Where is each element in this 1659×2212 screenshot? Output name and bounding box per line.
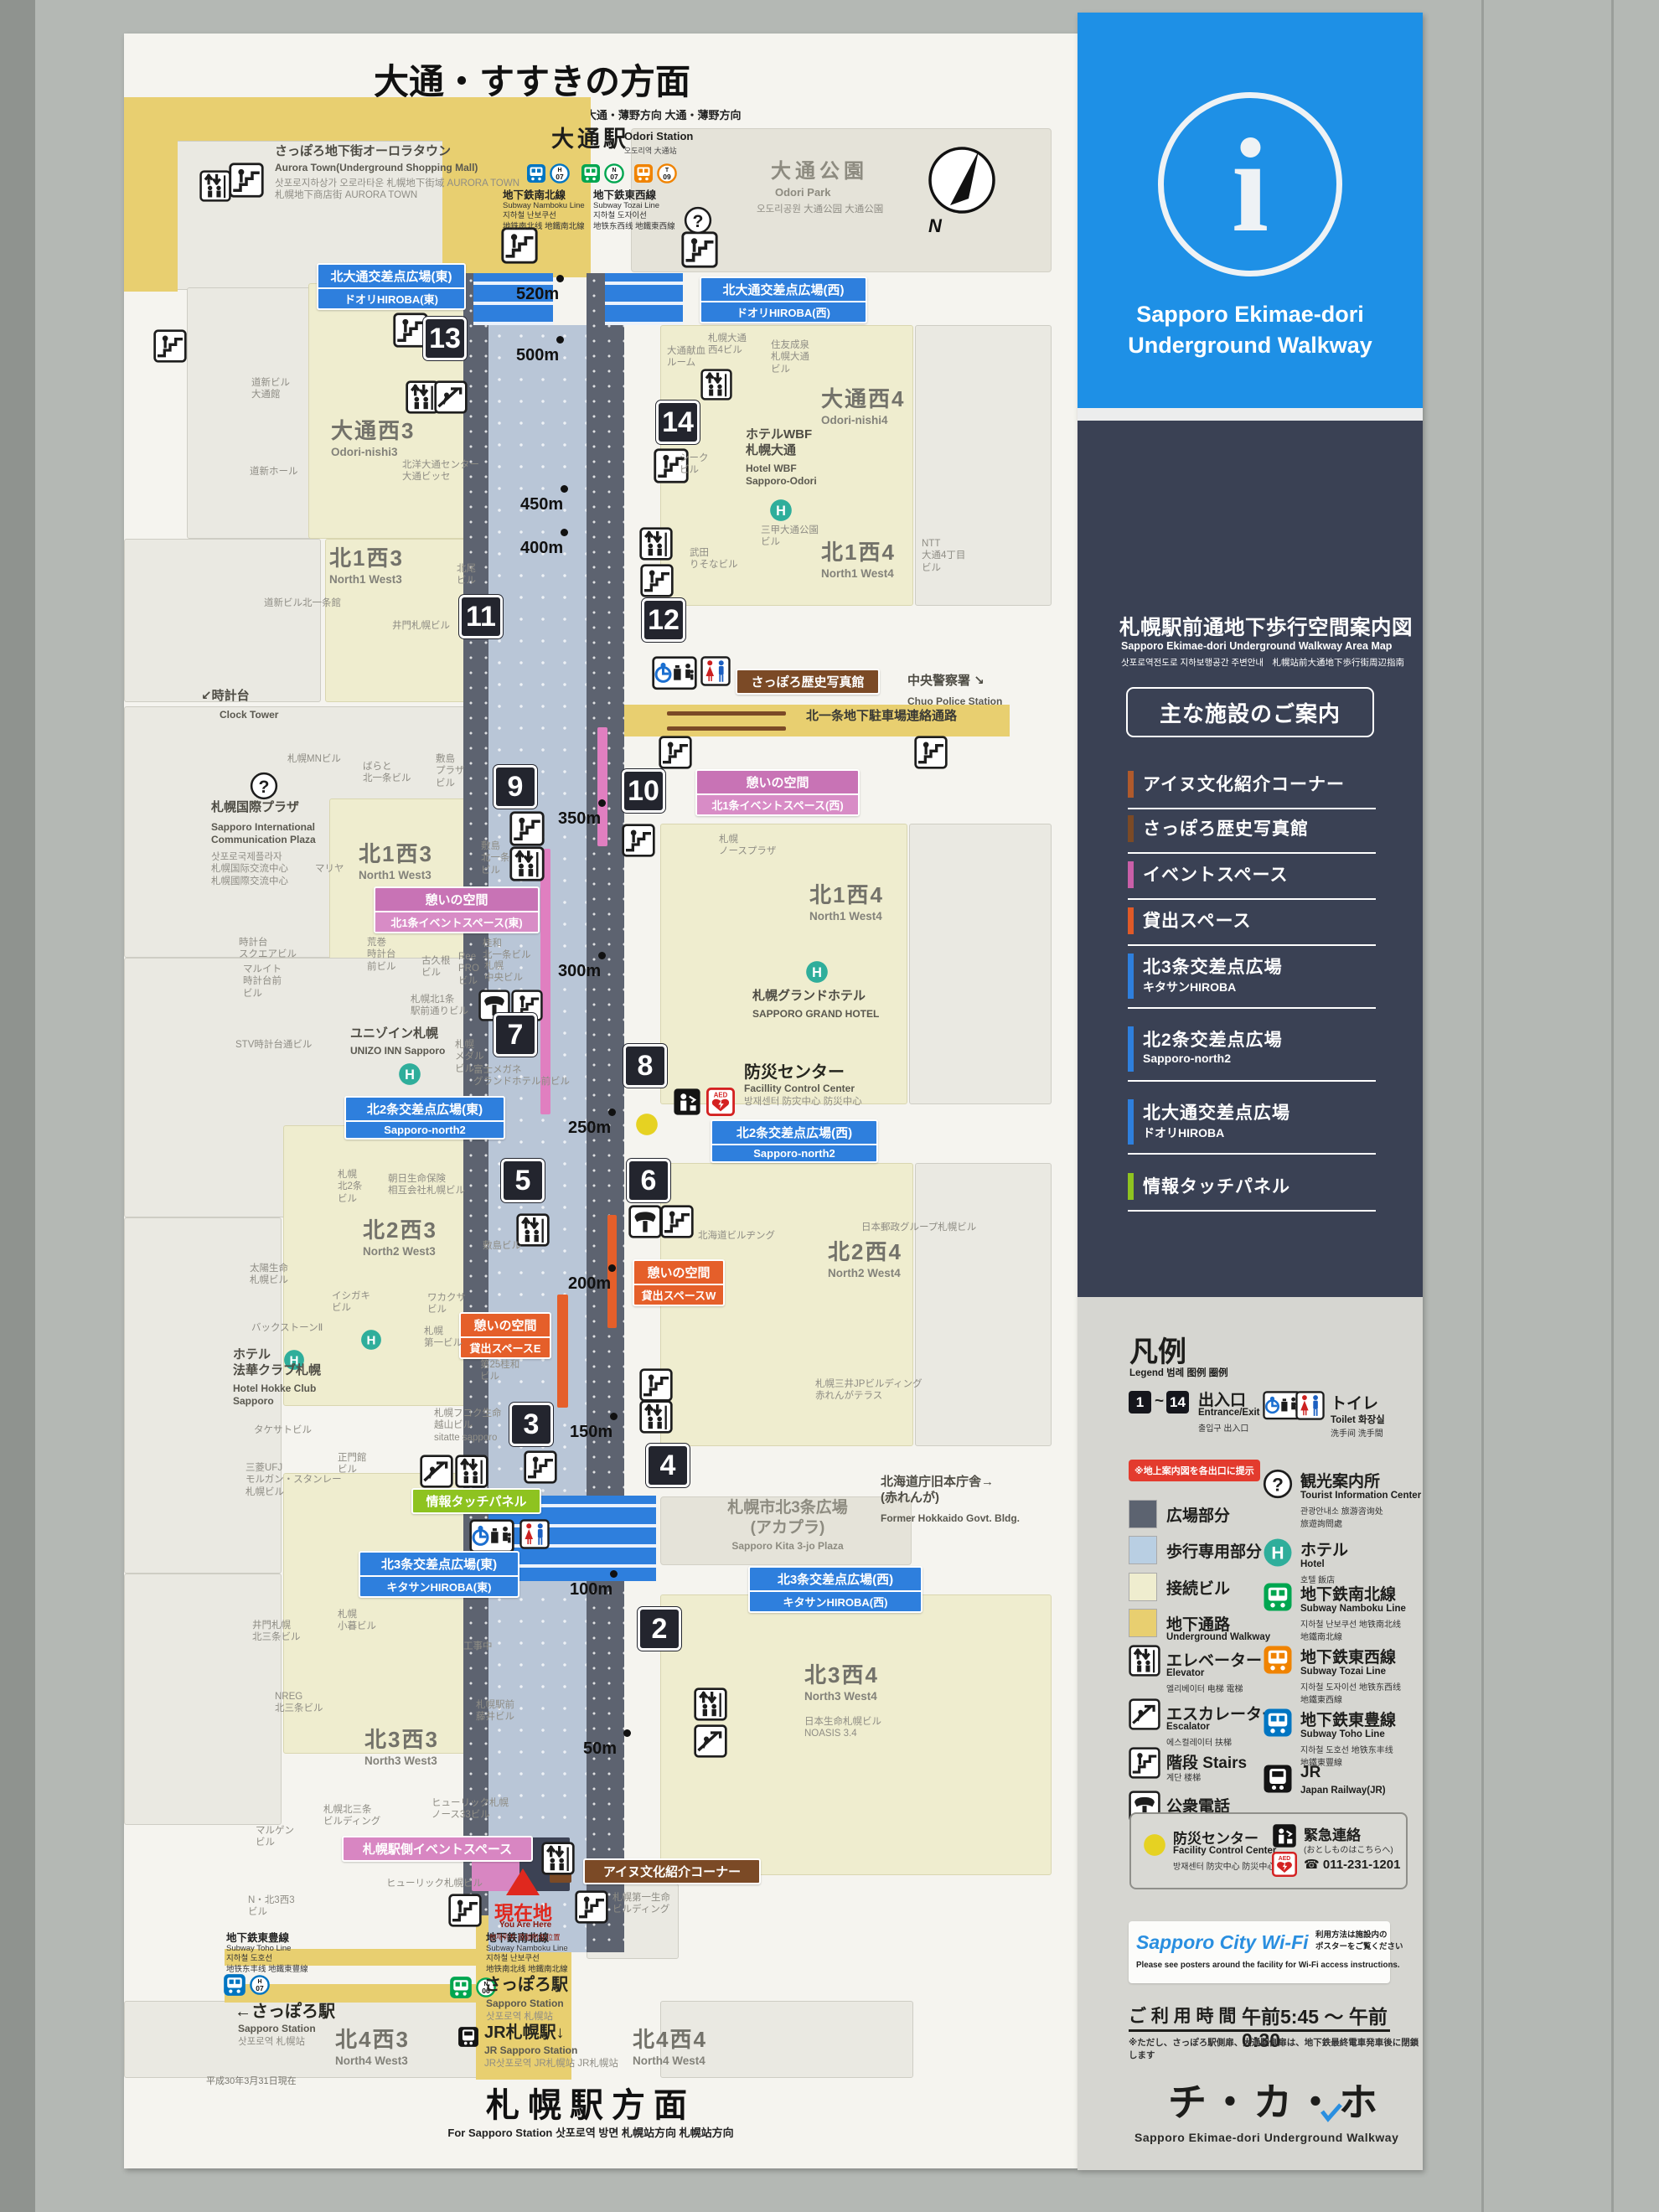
map-text: 北4西4 <box>633 2026 707 2054</box>
map-text: Sapporo International Communication Plaz… <box>211 821 316 846</box>
q-icon: ? <box>1263 1469 1293 1499</box>
map-text: 北1西3 <box>359 840 433 868</box>
map-text: 北2西3 <box>363 1217 437 1244</box>
map-text: 札幌大通 西4ビル <box>708 333 747 357</box>
svg-text:AED: AED <box>714 1091 728 1098</box>
map-title-bottom-sub: For Sapporo Station 삿포로역 방면 札幌站方向 札幌站方向 <box>318 2127 863 2140</box>
distance-marker: 200m <box>568 1274 611 1294</box>
map-text: 大通西3 <box>331 417 415 445</box>
hotel-icon: H <box>769 499 793 522</box>
facility-name: さっぽろ歴史写真館 <box>1143 815 1309 840</box>
map-place-tag: さっぽろ歴史写真館 <box>736 669 880 695</box>
map-text: バックストーンⅡ <box>251 1322 323 1334</box>
map-text: 朝日生命保険 相互会社札幌ビル <box>388 1173 465 1197</box>
underground-walkway-band <box>124 97 178 292</box>
legend-text: 地下通路 <box>1166 1612 1230 1635</box>
q-icon: ? <box>684 206 712 235</box>
legend-text: (おとしものはこちらへ) <box>1304 1842 1393 1855</box>
subN-icon <box>449 1976 473 1999</box>
distance-marker: 350m <box>558 809 601 829</box>
map-text: 工事中 <box>463 1641 493 1652</box>
map-text: 札幌北三条 ビルディング <box>323 1804 380 1828</box>
compass-north-label: N <box>928 215 942 237</box>
map-text: 日本生命札幌ビル NOASIS 3.4 <box>804 1716 881 1740</box>
map-text: さっぽろ地下街オーロラタウン <box>275 144 451 160</box>
info-panel-line1: Sapporo Ekimae-dori <box>1078 302 1423 328</box>
event-space-strip <box>667 711 786 716</box>
elev-icon <box>700 369 732 401</box>
subway-line-badge: T09 <box>657 163 677 183</box>
map-text: Chuo Police Station <box>907 695 1002 708</box>
q-icon: ? <box>250 772 278 800</box>
map-text: 防災センター <box>744 1062 845 1083</box>
subN-icon <box>581 163 601 183</box>
map-text: 道新ビル北一条館 <box>264 597 341 609</box>
map-text: 北海道庁旧本庁舎→ (赤れんが) <box>881 1475 994 1507</box>
map-text: North3 West4 <box>804 1690 877 1704</box>
wall-seam <box>1481 0 1484 2212</box>
stairs-icon <box>639 1368 673 1402</box>
map-text: ホテル 法華クラブ札幌 <box>233 1347 321 1379</box>
map-text: SAPPORO GRAND HOTEL <box>752 1008 879 1021</box>
you-are-here-kc: 현재위치 目前所在位置 <box>489 1932 561 1942</box>
legend-text: 관광안내소 旅游咨询处 旅遊詢問處 <box>1300 1504 1383 1529</box>
esc-icon <box>1129 1698 1160 1730</box>
building-block <box>187 287 313 539</box>
area-map-text: 삿포로역전도로 지하보행공간 주변안내 札幌站前大通地下歩行街周辺指南 <box>1121 656 1404 669</box>
distance-marker: 400m <box>520 539 563 558</box>
map-text: North4 West3 <box>335 2054 408 2069</box>
svg-text:H: H <box>405 1067 415 1083</box>
legend-text: 地下鉄東豊線 <box>1300 1708 1396 1730</box>
facility-name: 貸出スペース <box>1143 907 1251 933</box>
map-text: 札幌 ノースプラザ <box>719 834 776 858</box>
subH-icon <box>223 1973 246 1997</box>
building-block <box>124 1574 282 1825</box>
map-text: 大通駅 <box>551 126 629 154</box>
exit-number-badge: 7 <box>494 1013 537 1057</box>
subway-line-badge: H07 <box>250 1975 270 1995</box>
legend-text: 出入口 <box>1198 1388 1246 1410</box>
map-text: NTT 大通4丁目 ビル <box>922 538 965 574</box>
exit-number-badge: 6 <box>627 1159 670 1202</box>
stairs-icon <box>501 227 538 264</box>
legend-title-sub: Legend 범례 图例 圈例 <box>1129 1366 1228 1379</box>
map-text: 北4西3 <box>335 2026 410 2054</box>
map-text: 北3西4 <box>804 1662 879 1689</box>
event-space-strip <box>667 726 786 731</box>
map-text: 오도리공원 大通公园 大通公園 <box>757 204 883 215</box>
map-text: 北2西4 <box>828 1238 902 1266</box>
map-text: 井門札幌 北三条ビル <box>252 1620 301 1644</box>
map-text: 오도리역 大通站 <box>624 147 677 156</box>
legend-swatch <box>1129 1609 1157 1637</box>
dot-icon <box>635 1113 659 1136</box>
legend-panel: 凡例Legend 범례 图例 圈例1~14出入口Entrance/Exit출입구… <box>1078 1297 1423 2170</box>
map-text: 三菱UFJ モルガン・スタンレー 札幌ビル <box>245 1462 342 1498</box>
facility-separator <box>1128 1153 1376 1155</box>
map-text: North1 West3 <box>359 869 432 883</box>
map-text: ユニゾイン札幌 <box>350 1026 438 1042</box>
map-text: 札幌 小暮ビル <box>338 1609 376 1633</box>
facility-subname: Sapporo-north2 <box>1143 1052 1231 1065</box>
crossing-plaza-zone <box>605 273 683 325</box>
subH-icon <box>1263 1708 1293 1738</box>
chikaho-logo-en: Sapporo Ekimae-dori Underground Walkway <box>1134 2131 1398 2144</box>
map-text: 道新ビル 大通館 <box>251 377 290 401</box>
stairs-icon <box>575 1890 608 1924</box>
range-tilde: ~ <box>1155 1393 1164 1411</box>
exit-number-badge: 2 <box>638 1607 681 1651</box>
wall-seam <box>1611 0 1614 2212</box>
hotel-icon: H <box>398 1062 421 1086</box>
legend-text: Japan Railway(JR) <box>1300 1786 1386 1796</box>
map-text: Aurora Town(Underground Shopping Mall) <box>275 162 478 174</box>
map-text: 방재센터 防灾中心 防災中心 <box>744 1096 862 1108</box>
elev-icon <box>694 1687 727 1721</box>
svg-text:H: H <box>776 504 786 519</box>
distance-marker: 300m <box>558 962 601 981</box>
exit-number-badge: 14 <box>656 401 700 444</box>
legend-text: Escalator <box>1166 1722 1210 1732</box>
map-text: 北洋大通センター 大通ビッセ <box>402 459 479 483</box>
info-icon-letter: i <box>1164 105 1336 266</box>
map-text: 平成30年3月31日現在 <box>206 2076 297 2088</box>
map-text: Subway Tozai Line 지하철 도자이선 地铁东西线 地鐵東西線 <box>593 201 675 232</box>
legend-text: 洗手间 洗手間 <box>1331 1426 1383 1439</box>
facility-name: 北3条交差点広場 <box>1143 954 1283 979</box>
esc-icon <box>434 380 468 414</box>
distance-marker: 50m <box>583 1739 617 1759</box>
aed-icon: AED <box>706 1088 735 1116</box>
map-text: JR삿포로역 JR札幌站 JR札幌站 <box>484 2058 618 2070</box>
map-text: タケサトビル <box>254 1424 312 1436</box>
map-text: North1 West4 <box>809 910 882 924</box>
map-text: Odori-nishi4 <box>821 414 888 428</box>
svg-text:07: 07 <box>556 173 564 181</box>
elev-icon <box>455 1455 488 1488</box>
info-icon: i <box>1158 92 1342 276</box>
facility-separator <box>1128 1080 1376 1082</box>
map-text: ↙時計台 <box>201 689 250 705</box>
facility-subname: キタサンHIROBA <box>1143 979 1236 995</box>
facility-color-bar <box>1128 907 1134 934</box>
map-text: 札幌MNビル <box>287 753 341 765</box>
map-text: Subway Namboku Line 지하철 난보쿠선 地铁南北线 地鐵南北線 <box>503 201 585 232</box>
toiletMF-icon <box>1295 1391 1325 1420</box>
wifi-en: Please see posters around the facility f… <box>1136 1961 1400 1970</box>
map-text: 北3西3 <box>364 1726 439 1754</box>
legend-text: 지하철 난보쿠선 地铁南北线 地鐵南北線 <box>1300 1617 1401 1642</box>
stairs-icon <box>660 1205 694 1238</box>
facility-color-bar <box>1128 1173 1134 1200</box>
map-text: NREG 北三条ビル <box>275 1691 323 1715</box>
map-text: シーク ビル <box>680 452 709 477</box>
map-text: 札幌駅前 藤井ビル <box>476 1699 514 1724</box>
map-text: 삿포로국제플라자 札幌国际交流中心 札幌國際交流中心 <box>211 851 288 887</box>
facility-color-bar <box>1128 771 1134 798</box>
map-text: Former Hokkaido Govt. Bldg. <box>881 1512 1020 1525</box>
stairs-icon <box>153 329 187 363</box>
map-text: Odori Station <box>624 130 693 143</box>
map-text: 大通献血 ルーム <box>667 345 705 370</box>
stairs-icon <box>1129 1747 1160 1779</box>
svg-text:H: H <box>812 965 822 980</box>
facility-separator <box>1128 1210 1376 1212</box>
map-text: N・北3西3 ビル <box>248 1894 295 1919</box>
map-text: UNIZO INN Sapporo <box>350 1045 445 1057</box>
map-text: Sapporo Kita 3-jo Plaza <box>708 1540 867 1553</box>
map-text: 太陽生命 札幌ビル <box>250 1263 288 1287</box>
map-text: North2 West4 <box>828 1267 901 1281</box>
area-map-text: Sapporo Ekimae-dori Underground Walkway … <box>1121 640 1392 652</box>
legend-swatch <box>1129 1536 1157 1564</box>
hotel-icon: H <box>360 1329 382 1351</box>
legend-text: Facility Control Center <box>1173 1846 1276 1856</box>
map-text: 札幌 第一ビル <box>424 1326 463 1350</box>
esc-icon <box>694 1724 727 1758</box>
toiletMF-icon <box>519 1519 550 1549</box>
map-text: 札幌フコク生命 越山ビル sitatte sapporo <box>434 1408 502 1444</box>
map-text: North2 West3 <box>363 1245 436 1259</box>
map-text: イシガキ ビル <box>332 1290 370 1315</box>
exit-number-badge: 8 <box>623 1044 667 1088</box>
map-text: 荒巻 時計台 前ビル <box>367 937 396 973</box>
map-text: 中央警察署 ↘ <box>907 674 985 690</box>
em-tel: ☎ 011-231-1201 <box>1304 1857 1400 1872</box>
map-place-tag: 憩いの空間貸出スペースW <box>633 1259 725 1306</box>
building-block <box>124 539 321 702</box>
legend-text: トイレ <box>1331 1391 1378 1414</box>
map-text: 大通西4 <box>821 385 905 413</box>
legend-text: 방재센터 防灾中心 防災中心 <box>1173 1859 1275 1872</box>
hours-note: ※ただし、さっぽろ駅側扉、大通駅側扉は、地下鉄最終電車発車後に閉鎖します <box>1129 2036 1423 2061</box>
elev-icon <box>1129 1645 1160 1677</box>
legend-text: 階段 Stairs <box>1166 1750 1247 1773</box>
facility-name: イベントスペース <box>1143 861 1288 886</box>
toiletA-icon <box>469 1519 514 1553</box>
legend-text: Subway Namboku Line <box>1300 1604 1406 1614</box>
facility-separator <box>1128 852 1376 854</box>
map-text: 北尾 ビル <box>457 563 476 587</box>
map-text: North4 West4 <box>633 2054 705 2069</box>
map-text: 北海道ビルヂング <box>698 1230 775 1242</box>
subT-icon <box>633 163 654 183</box>
ground-map-note: ※地上案内図を各出口に提示 <box>1129 1460 1260 1481</box>
map-text: 敷島ビル <box>483 1240 521 1252</box>
elev-icon <box>541 1842 575 1875</box>
map-text: Hotel Hokke Club Sapporo <box>233 1382 316 1408</box>
facility-separator <box>1128 898 1376 900</box>
distance-marker: 100m <box>570 1580 612 1600</box>
legend-text: Subway Tozai Line <box>1300 1667 1386 1677</box>
map-place-tag: 北3条交差点広場(東)キタサンHIROBA(東) <box>359 1551 519 1598</box>
map-text: 古久根 ビル <box>421 955 451 979</box>
lost-icon <box>673 1088 701 1116</box>
svg-text:H: H <box>367 1333 376 1347</box>
map-text: 井門札幌ビル <box>392 620 450 632</box>
map-text: 札幌 中央ビル <box>484 960 523 985</box>
map-text: ヒューリック札幌 ノース33ビル <box>432 1797 509 1822</box>
building-block <box>915 1163 1052 1446</box>
em-name: 緊急連絡 <box>1304 1823 1361 1844</box>
map-text: 삿포로지하상가 오로라타운 札幌地下街域 AURORA TOWN 札幌地下商店街… <box>275 178 519 202</box>
svg-text:?: ? <box>259 777 270 797</box>
info-blue-panel: i Sapporo Ekimae-dori Underground Walkwa… <box>1078 13 1423 408</box>
map-place-tag: 北大通交差点広場(東)ドオリHIROBA(東) <box>317 263 466 310</box>
legend-text: 地下鉄東西線 <box>1300 1645 1396 1667</box>
info-panel-line2: Underground Walkway <box>1078 333 1423 359</box>
map-text: Ree PRO ビル <box>458 951 479 987</box>
legend-text: Tourist Information Center <box>1300 1491 1421 1501</box>
exit-badge-14: 14 <box>1166 1391 1189 1414</box>
exit-number-badge: 13 <box>423 317 467 360</box>
legend-text: Hotel <box>1300 1559 1325 1569</box>
svg-text:?: ? <box>1272 1474 1284 1495</box>
facility-color-bar <box>1128 815 1134 842</box>
facility-subname: ドオリHIROBA <box>1143 1124 1224 1141</box>
fcc-name: 防災センター <box>1173 1827 1258 1848</box>
map-text: 札幌北1条 駅前通りビル <box>411 994 468 1018</box>
chikaho-logo: チ・カ・ホ <box>1168 2072 1382 2127</box>
legend-text: Subway Toho Line <box>1300 1729 1385 1739</box>
legend-text: ホテル <box>1300 1538 1348 1560</box>
map-text: 武田 りそなビル <box>690 547 738 571</box>
exit-number-badge: 12 <box>642 598 685 642</box>
map-text: JR札幌駅↓ <box>484 2023 565 2044</box>
stairs-icon <box>524 1450 557 1484</box>
facility-separator <box>1128 944 1376 946</box>
stairs-icon <box>914 736 948 769</box>
area-map-text: 札幌駅前通地下歩行空間案内図 <box>1119 612 1413 641</box>
facility-name: 情報タッチパネル <box>1143 1173 1290 1198</box>
map-text: ばらと 北一条ビル <box>363 761 411 785</box>
map-place-tag: 北2条交差点広場(東)Sapporo-north2 <box>344 1096 505 1140</box>
you-are-here-en: You Are Here <box>499 1920 551 1930</box>
facility-guide-box: 主な施設のご案内 <box>1126 687 1374 737</box>
stairs-icon <box>509 811 545 846</box>
elev-icon <box>639 1400 673 1434</box>
map-text: さっぽろ駅 <box>484 1975 568 1996</box>
map-text: 住友成泉 札幌大通 ビル <box>771 339 809 375</box>
map-place-tag: 情報タッチパネル <box>411 1488 541 1514</box>
map-text: Sapporo Station <box>238 2023 316 2035</box>
facility-color-bar <box>1128 1099 1134 1145</box>
map-text: 三甲大通公園 ビル <box>761 525 819 549</box>
map-text: 札幌第一生命 ビルディング <box>612 1892 670 1916</box>
legend-text: JR <box>1300 1764 1320 1782</box>
map-text: 北1西4 <box>821 539 896 566</box>
facility-color-bar <box>1128 1026 1134 1072</box>
map-text: 道新ホール <box>250 466 298 478</box>
map-text: 삿포로역 札幌站 <box>238 2036 305 2048</box>
elev-icon <box>509 846 545 881</box>
map-place-tag: 憩いの空間貸出スペースE <box>459 1312 551 1359</box>
map-text: 北1西3 <box>329 545 404 572</box>
legend-text: 歩行専用部分 <box>1166 1539 1262 1562</box>
svg-text:07: 07 <box>256 1984 264 1992</box>
svg-text:AED: AED <box>1279 1856 1291 1862</box>
logo-check-icon <box>1319 2103 1344 2123</box>
area-map-panel: 札幌駅前通地下歩行空間案内図Sapporo Ekimae-dori Underg… <box>1078 421 1423 1297</box>
map-text: 日本郵政グループ札幌ビル <box>861 1222 976 1233</box>
legend-text: 地下鉄南北線 <box>1300 1582 1396 1605</box>
svg-text:09: 09 <box>663 173 671 181</box>
map-place-tag: 北3条交差点広場(西)キタサンHIROBA(西) <box>748 1566 923 1613</box>
exit-number-badge: 9 <box>494 765 537 809</box>
legend-text: Entrance/Exit <box>1198 1408 1260 1418</box>
plaza-strip <box>587 273 624 1952</box>
map-text: Odori Park <box>775 186 830 199</box>
toiletMF-icon <box>700 656 731 686</box>
legend-swatch <box>1129 1573 1157 1601</box>
map-text: North1 West4 <box>821 567 894 581</box>
hotel-icon: H <box>805 960 829 984</box>
map-text: 札幌市北3条広場 (アカプラ) <box>708 1498 867 1538</box>
photo-of-underground-walkway-sign: 大通・すすきの方面 For Odori & Susukino Station 오… <box>0 0 1659 2212</box>
map-text: ワカクサ ビル <box>427 1292 466 1316</box>
legend-swatch <box>1129 1500 1157 1528</box>
map-text: Facillity Control Center <box>744 1083 855 1095</box>
exit-number-badge: 5 <box>501 1159 545 1202</box>
map-board: 大通・すすきの方面 For Odori & Susukino Station 오… <box>124 34 1078 2168</box>
map-text: Clock Tower <box>220 709 278 721</box>
legend-text: Toilet 화장실 <box>1331 1413 1385 1426</box>
legend-text: 지하철 도자이선 地铁东西线 地鐵東西線 <box>1300 1680 1401 1705</box>
legend-text: エスカレーター <box>1166 1702 1278 1724</box>
right-info-column: i Sapporo Ekimae-dori Underground Walkwa… <box>1078 13 1423 2170</box>
jr-icon <box>1263 1764 1293 1794</box>
facility-color-bar <box>1128 954 1134 999</box>
legend-text: 広場部分 <box>1166 1503 1230 1526</box>
exit-number-badge: 3 <box>509 1403 553 1446</box>
subN-icon <box>1263 1582 1293 1612</box>
legend-text: Underground Walkway <box>1166 1632 1270 1642</box>
map-text: ホテルWBF 札幌大通 <box>746 427 812 459</box>
you-are-here-marker <box>506 1868 540 1895</box>
map-text: 大通公園 <box>771 159 868 184</box>
map-text: マルゲン ビル <box>256 1825 294 1849</box>
legend-text: 출입구 出入口 <box>1198 1421 1248 1434</box>
map-text: Sapporo Station <box>486 1998 564 2010</box>
map-text: North3 West3 <box>364 1755 437 1769</box>
facility-color-bar <box>1128 861 1134 888</box>
legend-text: 엘리베이터 电梯 電梯 <box>1166 1682 1243 1694</box>
map-text: 北一条地下駐車場連絡通路 <box>806 709 957 725</box>
subway-line-badge: N07 <box>604 163 624 183</box>
map-text: Subway Toho Line 지하철 도호선 地铁东丰线 地鐵東豐線 <box>226 1944 308 1975</box>
map-text: Subway Namboku Line 지하철 난보쿠선 地铁南北线 地鐵南北線 <box>486 1944 568 1975</box>
map-text: 삿포로역 札幌站 <box>486 2011 553 2023</box>
jr-icon <box>457 2026 479 2048</box>
map-place-tag: 憩いの空間北1条イベントスペース(西) <box>695 769 860 816</box>
map-text: マルイト 時計台前 ビル <box>243 964 282 1000</box>
map-text: 札幌三井JPビルディング 赤れんがテラス <box>815 1378 923 1403</box>
map-text: STV時計台通ビル <box>235 1039 312 1051</box>
stairs-icon <box>229 163 264 198</box>
map-place-tag: 北2条交差点広場(西)Sapporo-north2 <box>711 1119 878 1163</box>
map-text: ←さっぽろ駅 <box>235 2002 335 2023</box>
map-text: North1 West3 <box>329 573 402 587</box>
svg-text:H: H <box>1271 1544 1284 1563</box>
map-text: 時計台 スクエアビル <box>239 937 297 961</box>
map-text: マリヤ <box>315 863 344 875</box>
map-text: 北1西4 <box>809 881 884 909</box>
building-block <box>909 824 1052 1104</box>
map-place-tag: 北大通交差点広場(西)ドオリHIROBA(西) <box>700 276 867 323</box>
aed-icon: AED <box>1272 1852 1297 1877</box>
elev-icon <box>516 1213 550 1247</box>
